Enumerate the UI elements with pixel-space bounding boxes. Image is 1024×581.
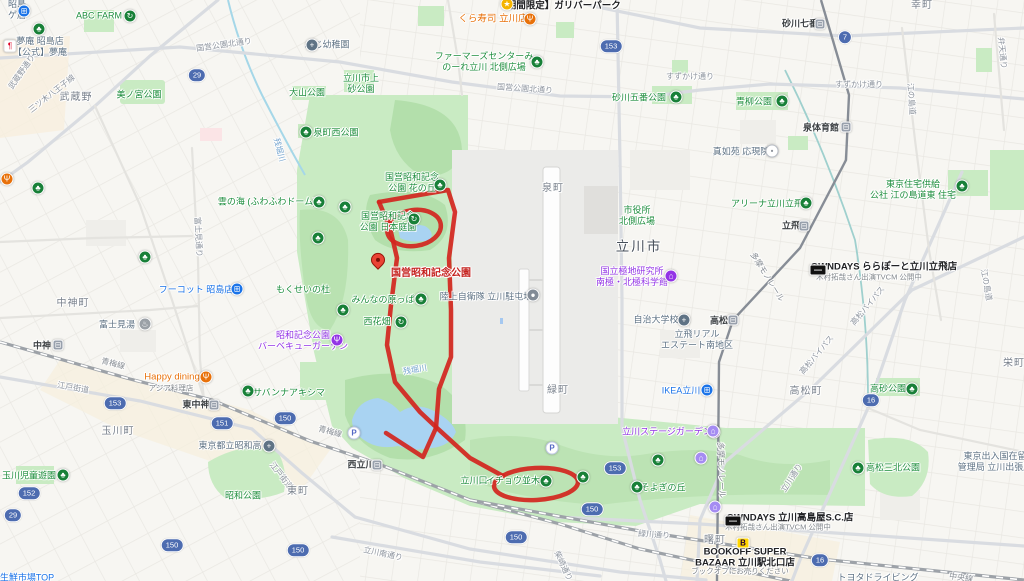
- map-label-park[interactable]: 西花畑: [363, 317, 390, 328]
- train-station-icon[interactable]: ⊟: [53, 340, 64, 351]
- map-label-town: 玉川町: [102, 426, 135, 438]
- map-label-town: 中神町: [57, 298, 90, 310]
- map-pin[interactable]: [369, 251, 387, 275]
- map-label-city: 立川市: [616, 239, 663, 255]
- map-label-sub: アジア料理店: [149, 384, 194, 393]
- tree-icon[interactable]: ♣: [57, 469, 70, 482]
- map-label-blue[interactable]: フーコット 昭島店: [159, 285, 234, 296]
- ikea-store-icon[interactable]: ⊞: [701, 384, 714, 397]
- school-icon[interactable]: +: [678, 314, 691, 327]
- map-label-road: 国営公園北通り: [497, 82, 554, 95]
- train-station-icon[interactable]: ⊟: [799, 221, 810, 232]
- map-label-road: 高松バイパス: [798, 334, 836, 377]
- pin-dot: [376, 258, 380, 262]
- road-number-badge: 150: [287, 543, 310, 557]
- tree-icon[interactable]: ♣: [313, 196, 326, 209]
- road-number-badge: 153: [104, 396, 127, 410]
- map-label-station[interactable]: 立飛: [782, 221, 800, 232]
- bookoff-logo-icon[interactable]: B: [737, 538, 750, 549]
- map-label-rail: 多摩モノレール: [748, 251, 786, 304]
- restaurant-logo-icon[interactable]: ¶: [4, 40, 17, 53]
- map-label-road: 立川南通り: [362, 545, 403, 563]
- map-label-park[interactable]: 青柳公園: [736, 97, 772, 108]
- map-label-park[interactable]: 立川口: [460, 476, 487, 487]
- map-label-park[interactable]: 立川市上 砂公園: [343, 73, 379, 95]
- map-label-inst[interactable]: 東京出入国在留 管理局 立川出張所: [958, 451, 1024, 473]
- map-label-road: 江戸街道: [56, 380, 89, 395]
- map-label-park[interactable]: アリーナ立川立飛: [731, 199, 803, 210]
- restaurant-icon[interactable]: Ψ: [524, 13, 537, 26]
- train-station-icon[interactable]: ⊟: [841, 122, 852, 133]
- train-station-icon[interactable]: ⊟: [815, 19, 826, 30]
- map-label-park[interactable]: 砂川五番公園: [612, 93, 666, 104]
- tree-icon[interactable]: ♣: [434, 179, 447, 192]
- hotel-icon[interactable]: ⌂: [707, 425, 720, 438]
- map-label-park[interactable]: 泉町西公園: [313, 128, 358, 139]
- map-label-orange[interactable]: くら寿司 立川店: [458, 13, 527, 24]
- map-label-park[interactable]: 市役所 北側広場: [619, 205, 655, 227]
- map-label-park[interactable]: サバンナアキシマ: [253, 388, 325, 399]
- map-label-rail: 青梅線: [100, 356, 126, 371]
- recycle-icon[interactable]: ↻: [408, 213, 421, 226]
- map-label-town: 武蔵野: [60, 92, 93, 104]
- map-label-rail: 多摩モノレール: [715, 442, 727, 498]
- pinned-place-label[interactable]: 国営昭和記念公園: [391, 268, 471, 280]
- map-label-road: 弁天通り: [996, 37, 1009, 70]
- tree-icon[interactable]: ♣: [670, 91, 683, 104]
- map-label-park[interactable]: 東京住宅供給 公社 江の島道東 住宅: [870, 179, 956, 201]
- map-label-purple[interactable]: 国立極地研究所 南極・北極科学館: [596, 266, 668, 288]
- map-label-road: 立川通り: [779, 462, 804, 494]
- tree-icon[interactable]: ♣: [852, 462, 865, 475]
- road-number-badge: 150: [581, 502, 604, 516]
- map-label-inst[interactable]: 富士見湯: [99, 320, 135, 331]
- temple-icon[interactable]: •: [766, 145, 779, 158]
- map-label-road: 緑川通り: [638, 529, 671, 541]
- map-label-black[interactable]: 【期間限定】ガリバーパーク: [497, 0, 620, 11]
- tree-icon[interactable]: ♣: [337, 304, 350, 317]
- hot-spring-icon[interactable]: ♨: [139, 318, 152, 331]
- parking-icon[interactable]: P: [348, 427, 361, 440]
- map-label-road: 富士見通り: [192, 217, 204, 257]
- hotel-icon[interactable]: ⌂: [709, 501, 722, 514]
- map-label-park[interactable]: 玉川児童遊園: [2, 471, 56, 482]
- tree-icon[interactable]: ♣: [32, 182, 45, 195]
- map-label-town: 栄町: [1003, 358, 1024, 370]
- map-label-station[interactable]: 中神: [33, 341, 51, 352]
- map-label-park[interactable]: 国営昭和記念 公園 花の丘: [385, 172, 439, 194]
- map-label-town: 高松町: [790, 386, 823, 398]
- map-label-purple[interactable]: 立川ステージガーデン: [622, 427, 712, 438]
- map-label-park[interactable]: ABC FARM: [76, 11, 122, 22]
- school-icon[interactable]: +: [306, 39, 319, 52]
- map-label-station[interactable]: 東中神: [182, 400, 209, 411]
- map-label-town: 幸町: [911, 0, 933, 12]
- map-label-park[interactable]: ファーマーズセンターみ のーれ立川 北側広場: [435, 51, 534, 73]
- map-label-park[interactable]: 高松三北公園: [866, 463, 920, 474]
- owndays-logo-icon[interactable]: —: [725, 516, 742, 527]
- road-number-badge: 7: [838, 30, 852, 44]
- road-number-badge: 29: [4, 508, 22, 522]
- map-label-park[interactable]: もくせいの杜: [276, 285, 330, 296]
- train-station-icon[interactable]: ⊟: [209, 400, 220, 411]
- map-label-station[interactable]: 泉体育館: [803, 123, 839, 134]
- tree-icon[interactable]: ♣: [631, 481, 644, 494]
- recycle-icon[interactable]: ↻: [395, 316, 408, 329]
- map-label-inst[interactable]: 立飛リアル エステート南地区: [661, 329, 733, 351]
- shopping-icon[interactable]: ⊞: [231, 283, 244, 296]
- train-station-icon[interactable]: ⊟: [728, 315, 739, 326]
- bbq-garden-icon[interactable]: Ψ: [331, 334, 344, 347]
- tree-icon[interactable]: ♣: [800, 197, 813, 210]
- map-label-inst[interactable]: 夢庵 昭島店 【公式】夢庵: [13, 36, 67, 58]
- road-number-badge: 150: [274, 411, 297, 425]
- map-label-road: 江の島道: [978, 268, 993, 301]
- map-label-road: 武蔵野通り: [7, 53, 38, 91]
- map-label-inst[interactable]: 東京都立昭和高: [198, 441, 261, 452]
- map-label-park[interactable]: 昭和公園: [225, 491, 261, 502]
- tree-icon[interactable]: ♣: [300, 126, 313, 139]
- school-icon[interactable]: +: [263, 440, 276, 453]
- road-number-badge: 150: [161, 538, 184, 552]
- tree-icon[interactable]: ♣: [242, 385, 255, 398]
- map-label-rail: 青梅線: [317, 424, 343, 439]
- map-label-road: 江の島道: [905, 83, 917, 116]
- map-label-park[interactable]: 大山公園: [289, 88, 325, 99]
- map-label-water: 残堀川: [402, 363, 427, 377]
- map-label-black[interactable]: OWNDAYS ららぽーと立川立飛店: [811, 261, 957, 272]
- tree-icon[interactable]: ♣: [956, 180, 969, 193]
- map-label-road: 高松バイパス: [849, 285, 887, 328]
- tree-icon[interactable]: ♣: [652, 454, 665, 467]
- museum-icon[interactable]: ⌂: [665, 270, 678, 283]
- map-label-blue[interactable]: IKEA立川: [662, 386, 701, 397]
- map-label-sub: ブックオフにお売りください: [691, 567, 789, 576]
- tree-icon[interactable]: ♣: [33, 23, 46, 36]
- road-number-badge: 151: [211, 416, 234, 430]
- map-label-station[interactable]: 砂川七番: [782, 19, 818, 30]
- map-label-water: 残堀川: [271, 137, 286, 163]
- restaurant-icon[interactable]: Ψ: [1, 173, 14, 186]
- map-label-inst[interactable]: 真如苑 応現院: [713, 147, 770, 158]
- military-base-icon[interactable]: ●: [527, 289, 540, 302]
- map-label-inst[interactable]: トヨタドライビング: [837, 573, 918, 581]
- map-label-station[interactable]: 高松: [710, 316, 728, 327]
- road-number-badge: 29: [188, 68, 206, 82]
- tree-icon[interactable]: ♣: [776, 95, 789, 108]
- map-label-road: 柴崎通り: [552, 549, 574, 581]
- tree-icon[interactable]: ♣: [540, 475, 553, 488]
- map-label-orange[interactable]: Happy dining: [144, 371, 199, 382]
- map-label-inst[interactable]: 陸上自衛隊 立川駐屯地: [440, 292, 533, 303]
- tree-icon[interactable]: ♣: [906, 383, 919, 396]
- tree-icon[interactable]: ♣: [415, 293, 428, 306]
- map-label-town: 緑町: [547, 385, 569, 397]
- map-label-park[interactable]: そよぎの丘: [640, 483, 685, 494]
- road-number-badge: 153: [604, 461, 627, 475]
- map-overlay: 昭島 ゲ店ABC FARM夢庵 昭島店 【公式】夢庵【期間限定】ガリバーパークく…: [0, 0, 1024, 581]
- tree-icon[interactable]: ♣: [339, 201, 352, 214]
- road-number-badge: 153: [600, 39, 623, 53]
- map-label-road: すずかけ通り: [666, 72, 714, 82]
- restaurant-icon[interactable]: Ψ: [200, 371, 213, 384]
- tree-icon[interactable]: ♣: [312, 232, 325, 245]
- map-label-road: すずかけ通り: [835, 80, 883, 90]
- parking-icon[interactable]: P: [546, 442, 559, 455]
- map-label-sub: 木村拓哉さん出演TVCM 公開中: [816, 273, 922, 282]
- shopping-icon[interactable]: ⊞: [18, 5, 31, 18]
- map-label-town: 曙町: [704, 535, 726, 547]
- train-station-icon[interactable]: ⊟: [372, 460, 383, 471]
- tree-icon[interactable]: ♣: [577, 471, 590, 484]
- map-label-town: 泉町: [542, 183, 564, 195]
- map-label-park[interactable]: 雲の海 (ふわふわドーム): [218, 197, 316, 208]
- map-label-station[interactable]: 西立川: [347, 460, 374, 471]
- road-number-badge: 152: [18, 486, 41, 500]
- road-number-badge: 16: [811, 553, 829, 567]
- map-label-park[interactable]: 美ノ宮公園: [116, 90, 161, 101]
- owndays-logo-icon[interactable]: —: [810, 265, 827, 276]
- map-label-blue[interactable]: 生鮮市場TOP: [0, 573, 54, 581]
- road-number-badge: 150: [505, 530, 528, 544]
- tree-icon[interactable]: ♣: [531, 56, 544, 69]
- map-label-town: 東町: [287, 486, 309, 498]
- map-canvas[interactable]: 昭島 ゲ店ABC FARM夢庵 昭島店 【公式】夢庵【期間限定】ガリバーパークく…: [0, 0, 1024, 581]
- hotel-icon[interactable]: ⌂: [695, 452, 708, 465]
- tree-icon[interactable]: ♣: [139, 251, 152, 264]
- map-label-road: 国営公園北通り: [196, 36, 253, 53]
- road-number-badge: 16: [862, 393, 880, 407]
- map-label-inst[interactable]: 自治大学校: [633, 315, 678, 326]
- map-label-rail: 中央線: [948, 572, 973, 581]
- map-label-park[interactable]: みんなの原っぱ: [351, 295, 414, 306]
- recycle-icon[interactable]: ↻: [124, 10, 137, 23]
- map-label-park[interactable]: イチョウ並木: [486, 476, 540, 487]
